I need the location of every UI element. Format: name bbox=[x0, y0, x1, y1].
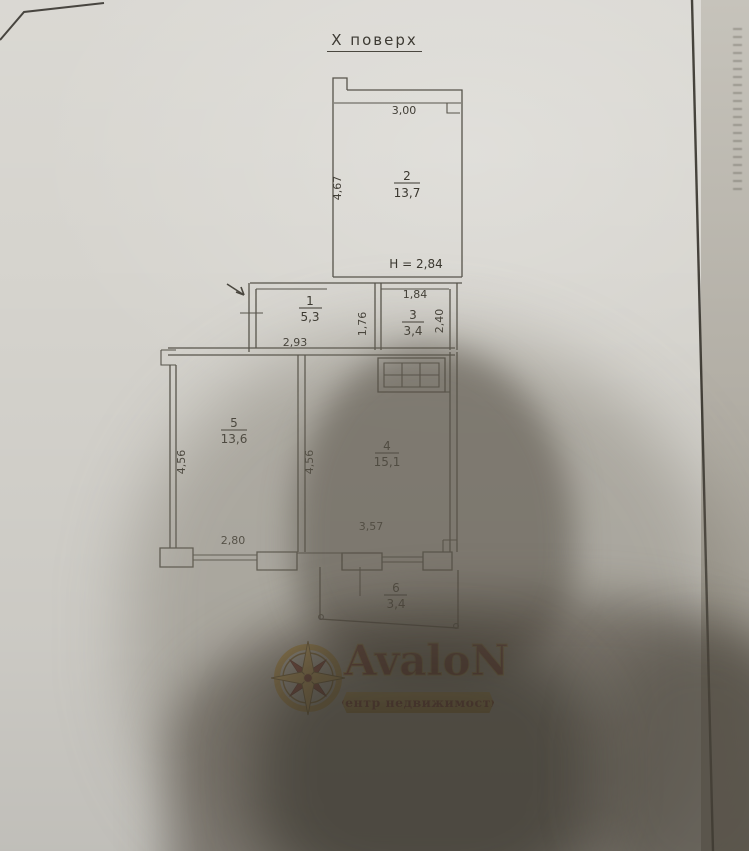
dim-room1-depth: 1,76 bbox=[356, 312, 369, 337]
ventilation-shaft bbox=[378, 358, 450, 392]
room4-area: 15,1 bbox=[374, 455, 401, 469]
dim-room3-width: 1,84 bbox=[403, 288, 428, 301]
brand-tagline-ribbon: центр недвижимости bbox=[342, 692, 494, 713]
room2-area: 13,7 bbox=[394, 186, 421, 200]
room5-number: 5 bbox=[230, 416, 238, 430]
paper-corner-line bbox=[0, 3, 104, 40]
room4-number: 4 bbox=[383, 439, 391, 453]
agency-watermark: AvaloN центр недвижимости bbox=[268, 636, 493, 724]
paper-edge-line bbox=[692, 0, 713, 851]
room3-number: 3 bbox=[409, 308, 417, 322]
floorplan-photo: Х поверх bbox=[0, 0, 749, 851]
dim-room2-depth: 4,67 bbox=[331, 176, 344, 201]
compass-rose-icon bbox=[268, 638, 348, 718]
room6-number: 6 bbox=[392, 581, 400, 595]
dim-room5-depth: 4,56 bbox=[175, 450, 188, 475]
dim-room1-width: 2,93 bbox=[283, 336, 308, 349]
room1-area: 5,3 bbox=[300, 310, 319, 324]
brand-tagline: центр недвижимости bbox=[335, 695, 500, 710]
room-number-underlines bbox=[221, 183, 424, 595]
dim-room3-depth: 2,40 bbox=[433, 309, 446, 334]
room3-area: 3,4 bbox=[403, 324, 422, 338]
ceiling-height-label: H = 2,84 bbox=[389, 257, 442, 271]
dim-room4-width: 3,57 bbox=[359, 520, 384, 533]
room2-number: 2 bbox=[403, 169, 411, 183]
room1-number: 1 bbox=[306, 294, 314, 308]
room5-area: 13,6 bbox=[221, 432, 248, 446]
dim-room5-width: 2,80 bbox=[221, 534, 246, 547]
dim-room2-width: 3,00 bbox=[392, 104, 417, 117]
dim-room4-depth: 4,56 bbox=[303, 450, 316, 475]
brand-name: AvaloN bbox=[344, 640, 509, 682]
room6-area: 3,4 bbox=[386, 597, 405, 611]
